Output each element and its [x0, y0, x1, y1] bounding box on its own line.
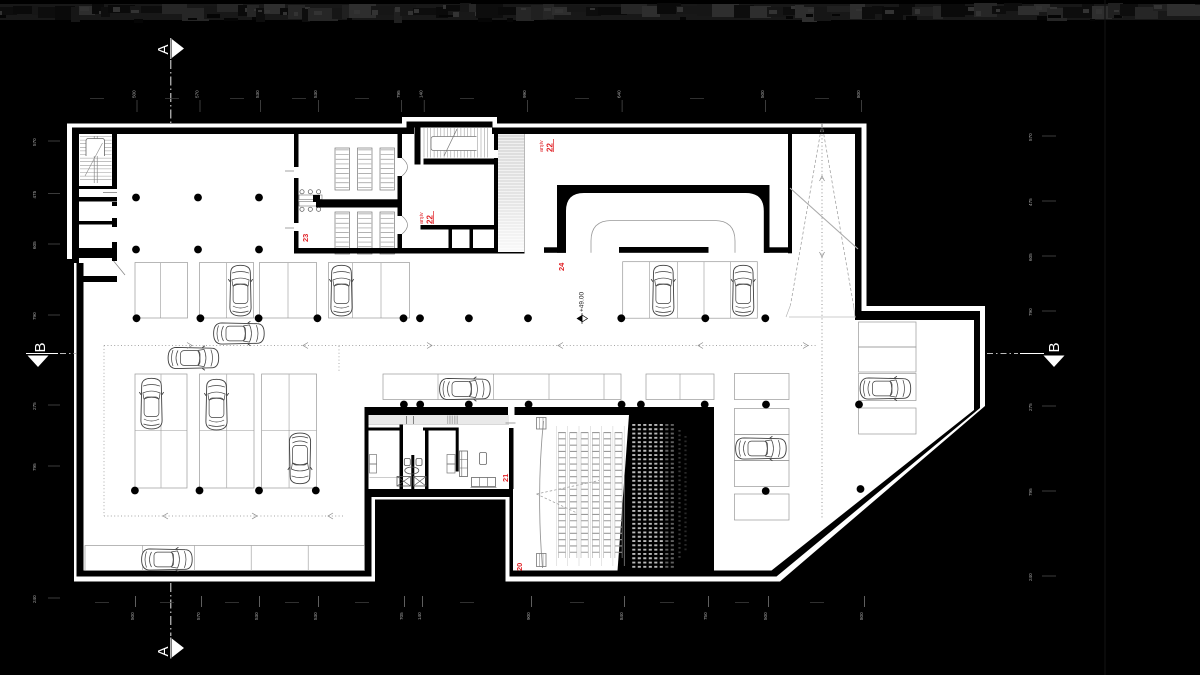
svg-text:795: 795: [396, 90, 401, 98]
svg-text:A: A: [155, 646, 172, 656]
svg-text:B: B: [32, 342, 49, 352]
svg-text:500: 500: [130, 612, 135, 620]
svg-text:900: 900: [526, 612, 531, 620]
svg-text:240: 240: [1028, 573, 1033, 581]
svg-text:275: 275: [1028, 403, 1033, 411]
svg-text:570: 570: [195, 90, 200, 98]
svg-text:140: 140: [419, 90, 424, 98]
svg-text:20: 20: [515, 563, 524, 571]
svg-text:750: 750: [703, 612, 708, 620]
svg-text:800: 800: [859, 612, 864, 620]
svg-text:570: 570: [196, 612, 201, 620]
svg-text:605: 605: [32, 241, 37, 249]
svg-text:arşiv: arşiv: [419, 212, 425, 224]
svg-text:530: 530: [313, 612, 318, 620]
svg-text:990: 990: [522, 90, 527, 98]
svg-text:790: 790: [32, 312, 37, 320]
svg-text:475: 475: [32, 190, 37, 198]
svg-text:240: 240: [32, 595, 37, 603]
svg-text:800: 800: [856, 90, 861, 98]
svg-text:530: 530: [254, 612, 259, 620]
svg-text:140: 140: [417, 612, 422, 620]
svg-text:705: 705: [399, 612, 404, 620]
svg-text:+49.00: +49.00: [579, 292, 586, 312]
svg-text:275: 275: [32, 402, 37, 410]
svg-text:24: 24: [557, 262, 566, 271]
svg-text:570: 570: [1028, 133, 1033, 141]
svg-text:530: 530: [255, 90, 260, 98]
svg-text:475: 475: [1028, 198, 1033, 206]
svg-text:570: 570: [32, 138, 37, 146]
svg-text:530: 530: [313, 90, 318, 98]
svg-text:605: 605: [1028, 253, 1033, 261]
svg-text:A: A: [155, 44, 172, 54]
svg-text:500: 500: [132, 90, 137, 98]
svg-text:B: B: [1046, 342, 1063, 352]
svg-text:790: 790: [1028, 308, 1033, 316]
svg-text:arşiv: arşiv: [539, 140, 545, 152]
svg-text:500: 500: [763, 612, 768, 620]
svg-text:795: 795: [1028, 488, 1033, 496]
svg-text:795: 795: [32, 463, 37, 471]
svg-text:21: 21: [501, 474, 510, 482]
svg-text:840: 840: [619, 612, 624, 620]
svg-text:640: 640: [617, 90, 622, 98]
svg-text:23: 23: [301, 234, 310, 242]
svg-text:500: 500: [760, 90, 765, 98]
